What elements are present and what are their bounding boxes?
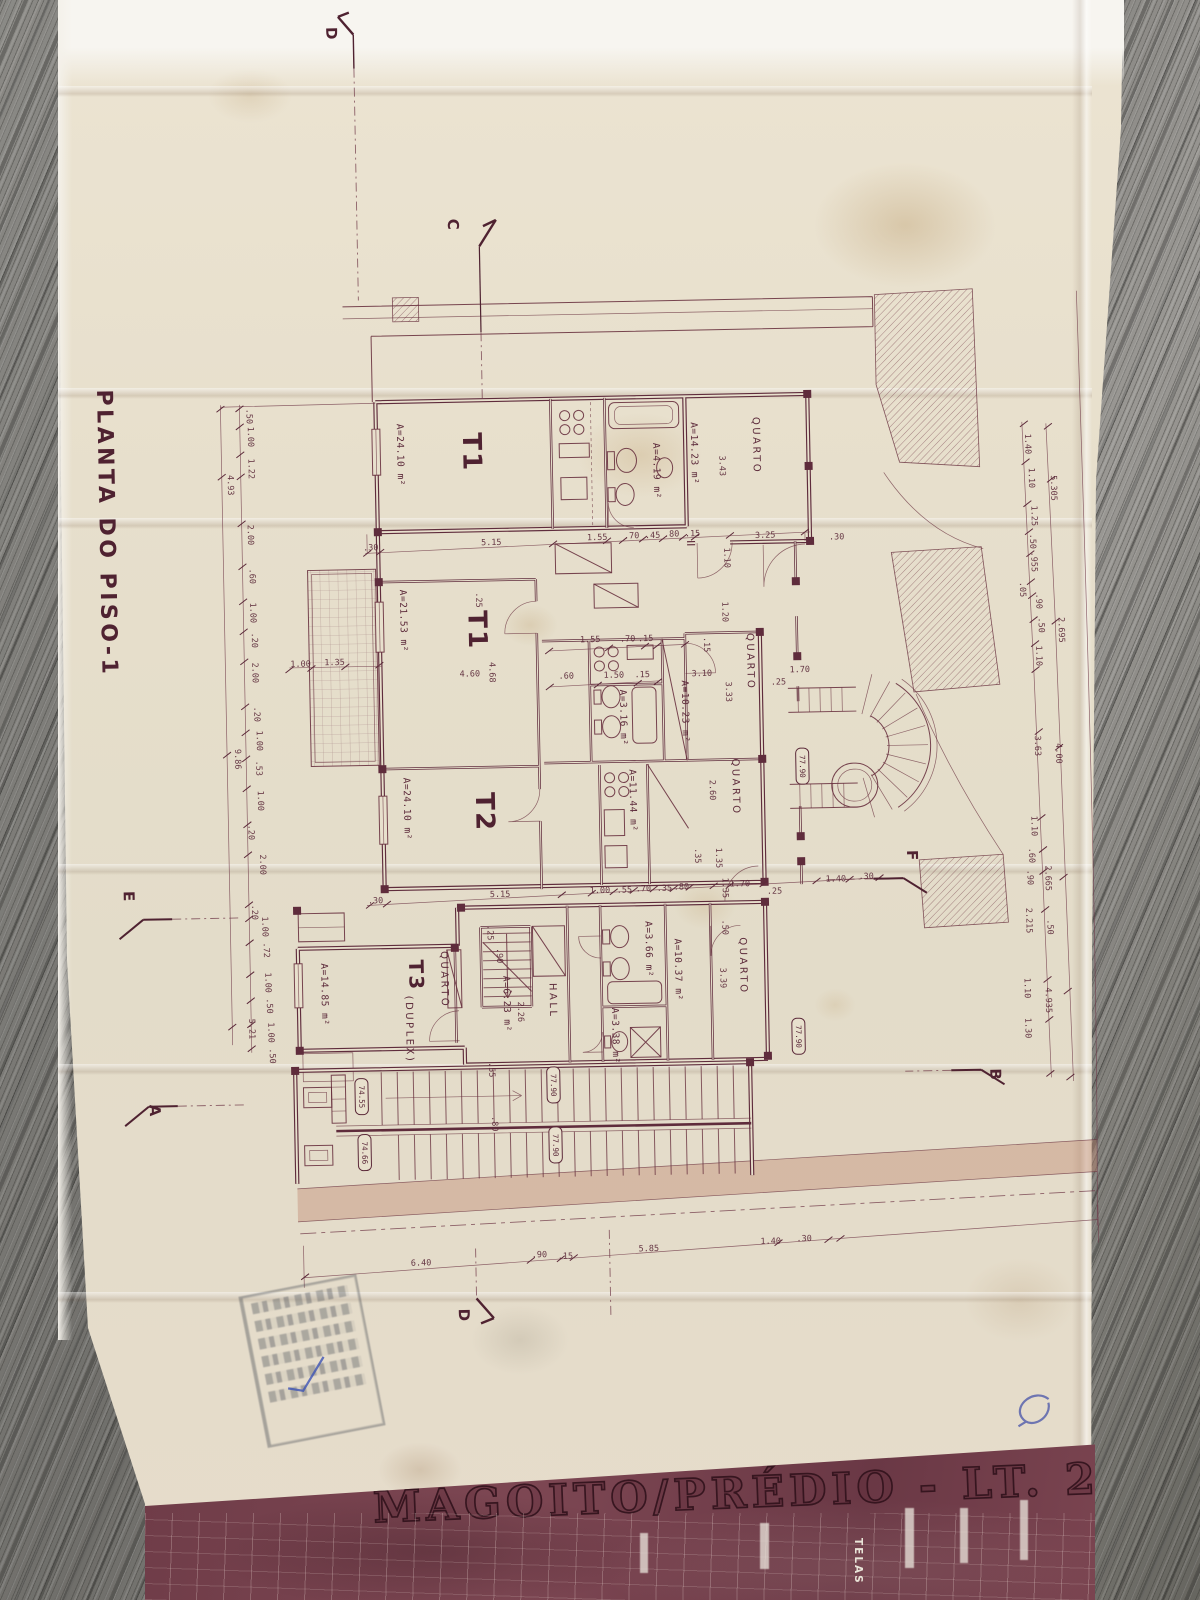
area-label: A=24.10 m² xyxy=(394,424,406,486)
dimension-label: .90 xyxy=(1033,593,1043,609)
dimension-label: .70 xyxy=(624,531,640,541)
area-label: A=14.23 m² xyxy=(688,422,700,484)
dimension-label: .35 xyxy=(657,884,673,894)
dimension-label: 1.00 xyxy=(245,427,255,448)
dimension-label: 2.00 xyxy=(257,854,267,875)
marker-label: D xyxy=(455,1309,473,1322)
level-marker-label: 77.90 xyxy=(549,1074,558,1097)
dimension-label: 1.40 xyxy=(1022,434,1032,455)
dimension-label: 1.00 xyxy=(290,660,311,670)
dimension-label: 9.86 xyxy=(232,749,242,770)
dimension-label: 2.665 xyxy=(1042,865,1052,891)
stairs-layer xyxy=(296,673,945,1182)
dimension-label: .25 xyxy=(771,677,787,687)
dimension-label: 1.10 xyxy=(1021,978,1031,999)
dimension-label: 1.55 xyxy=(580,635,601,645)
dimension-label: .72 xyxy=(261,942,271,958)
dimension-label: .60 xyxy=(559,671,575,681)
area-label: A=14.85 m² xyxy=(318,963,330,1025)
dimension-label: 1.35 xyxy=(324,658,345,668)
dimension-label: 2.00 xyxy=(245,525,255,546)
room-label: QUARTO xyxy=(737,937,749,994)
dimension-label: 1.35 xyxy=(713,848,723,869)
dimension-label: 3.63 xyxy=(1032,736,1042,757)
dimension-label: 1.00 xyxy=(265,1022,275,1043)
unit-label: T1 xyxy=(461,610,492,650)
area-label: A=21.53 m² xyxy=(397,590,409,652)
marker-label: D xyxy=(322,27,340,40)
area-label: A=11.44 m² xyxy=(626,769,638,831)
dimension-label: 1.55 xyxy=(587,533,608,543)
level-marker-label: 77.90 xyxy=(794,1025,803,1048)
room-label: QUARTO xyxy=(438,951,450,1008)
dimension-label: .25 xyxy=(767,887,783,897)
dimension-label: .25 xyxy=(473,592,483,608)
dimension-label: 2.695 xyxy=(1056,617,1066,643)
dimension-label: 4.93 xyxy=(225,475,235,496)
dimension-label: .60 xyxy=(246,569,256,585)
dimension-label: 3.25 xyxy=(755,531,776,541)
marker-label: E xyxy=(120,891,138,902)
dimension-label: 5.21 xyxy=(246,1019,256,1040)
dimension-label: .60 xyxy=(1026,848,1036,864)
room-label: (DUPLEX) xyxy=(403,996,415,1064)
floor-plan-drawing: 77.9077.9077.9077.9074.5574.66 PLANTA DO… xyxy=(0,0,1200,1600)
marker-label: C xyxy=(444,219,462,230)
dimension-label: 1.10 xyxy=(1033,645,1043,666)
dimension-label: .35 xyxy=(692,848,702,864)
dimension-label: .53 xyxy=(253,760,263,776)
dimension-label: 3.43 xyxy=(716,456,726,477)
title-block-text-smudge xyxy=(905,1508,914,1568)
dimension-label: 1.00 xyxy=(255,790,265,811)
dimension-label: 5.15 xyxy=(481,538,502,548)
dimension-label: 1.40 xyxy=(760,1237,781,1247)
dimension-label: 3.39 xyxy=(717,968,727,989)
dimension-label: .45 xyxy=(645,531,661,541)
title-block-text-smudge xyxy=(960,1508,968,1563)
dimension-label: .15 xyxy=(685,529,701,539)
dimension-label: .15 xyxy=(638,634,654,644)
area-label: A=3.16 m² xyxy=(617,689,629,745)
dimension-label: 1.25 xyxy=(1028,506,1038,527)
title-block-text-smudge xyxy=(1020,1500,1028,1560)
dimension-label: .20 xyxy=(249,905,259,921)
room-label: QUARTO xyxy=(729,758,741,815)
area-label: A=4.19 m² xyxy=(650,443,662,499)
dimension-label: .50 xyxy=(1027,534,1037,550)
level-marker-label: 77.90 xyxy=(798,755,807,778)
room-label: QUARTO xyxy=(744,633,756,690)
dimension-label: 1.30 xyxy=(1022,1018,1032,1039)
dimension-label: 1.00 xyxy=(262,972,272,993)
dimension-label: 1.40 xyxy=(825,874,846,884)
level-marker-label: 74.55 xyxy=(357,1086,366,1109)
dimension-label: 1.00 xyxy=(259,916,269,937)
dimension-label: .90 xyxy=(1024,870,1034,886)
unit-label: T2 xyxy=(469,792,500,832)
marker-label: F xyxy=(903,850,921,861)
terrace-tile-layer xyxy=(292,569,386,1082)
room-label: HALL xyxy=(547,983,559,1019)
level-marker-label: 74.66 xyxy=(360,1141,369,1164)
dimension-label: .30 xyxy=(796,1234,812,1244)
dimension-label: .20 xyxy=(249,633,259,649)
dimension-label: .80 xyxy=(489,1116,499,1132)
dimension-label: 6.40 xyxy=(411,1258,432,1268)
dimension-label: .30 xyxy=(363,543,379,553)
dimension-label: .955 xyxy=(1028,552,1038,573)
dimension-label: 4.60 xyxy=(459,669,480,679)
title-block-text-smudge xyxy=(640,1533,648,1573)
photo-of-floor-plan: 77.9077.9077.9077.9074.5574.66 PLANTA DO… xyxy=(0,0,1200,1600)
dimension-label: 1.10 xyxy=(721,547,731,568)
dimension-label: .90 xyxy=(494,948,504,964)
dimension-label: 2.215 xyxy=(1023,908,1033,934)
dimension-label: .15 xyxy=(701,637,711,653)
dimension-label: 4.68 xyxy=(486,662,496,683)
dimension-label: .30 xyxy=(368,896,384,906)
dimension-label: .15 xyxy=(635,670,651,680)
dimension-label: 1.22 xyxy=(245,459,255,480)
marker-label: A xyxy=(146,1104,164,1116)
area-label: A=3.38 m² xyxy=(609,1008,621,1064)
dimension-label: .55 xyxy=(617,885,633,895)
dimension-label: 4.935 xyxy=(1043,987,1053,1013)
dimension-label: .05 xyxy=(1017,582,1027,598)
walls-layer xyxy=(278,390,826,1184)
dimension-label: .70 xyxy=(620,634,636,644)
dimension-label: .55 xyxy=(486,1062,496,1078)
dimension-label: 1.50 xyxy=(604,671,625,681)
dimension-label: .50 xyxy=(264,998,274,1014)
dimension-label: .30 xyxy=(858,872,874,882)
dimension-label: 1.70 xyxy=(730,879,751,889)
dimension-label: 1.00 xyxy=(247,603,257,624)
title-label: PLANTA DO PISO-1 xyxy=(91,389,122,677)
dimension-label: 1.20 xyxy=(719,601,729,622)
dimension-label: .90 xyxy=(532,1250,548,1260)
dimension-label: 2.00 xyxy=(249,663,259,684)
area-label: A=10.23 m² xyxy=(679,680,691,742)
level-marker-label: 77.90 xyxy=(551,1134,560,1157)
dimension-label: .50 xyxy=(267,1048,277,1064)
dimension-label: 3.10 xyxy=(692,669,713,679)
dimension-label: 1.00 xyxy=(590,886,611,896)
dimension-label: 1.10 xyxy=(1028,816,1038,837)
dimension-label: .30 xyxy=(829,532,845,542)
dimension-label: .50 xyxy=(243,409,253,425)
dimension-label: 5.85 xyxy=(639,1244,660,1254)
dimension-label: .50 xyxy=(1036,617,1046,633)
marker-label: B xyxy=(986,1068,1004,1080)
dimension-label: .50 xyxy=(719,920,729,936)
area-label: A=3.66 m² xyxy=(642,921,654,977)
room-label: QUARTO xyxy=(750,417,762,474)
dimension-label: .20 xyxy=(245,825,255,841)
dimension-label: .70 xyxy=(636,884,652,894)
unit-label: T1 xyxy=(456,432,487,472)
area-label: A=10.37 m² xyxy=(672,938,684,1000)
dimension-label: 2.26 xyxy=(515,1001,525,1022)
dimension-label: 1.10 xyxy=(1026,468,1036,489)
dimension-label: 1.00 xyxy=(254,730,264,751)
dimension-label: 5.15 xyxy=(490,890,511,900)
dimension-label: 3.33 xyxy=(723,681,733,702)
unit-label: T3 xyxy=(404,959,429,991)
title-block-text-smudge xyxy=(760,1523,769,1569)
dimension-label: .20 xyxy=(251,706,261,722)
dimension-label: 5.305 xyxy=(1048,475,1058,501)
area-label: A=6.23 m² xyxy=(500,976,512,1032)
dimension-label: .80 xyxy=(674,882,690,892)
dimension-label: .15 xyxy=(558,1252,574,1262)
dimension-label: 4.00 xyxy=(1053,743,1063,764)
dimension-label: 1.35 xyxy=(720,878,730,899)
dimension-label: 2.60 xyxy=(707,780,717,801)
dimension-label: .80 xyxy=(664,529,680,539)
dimension-label: .50 xyxy=(1044,919,1054,935)
dimension-label: 1.70 xyxy=(789,665,810,675)
doors-layer xyxy=(419,499,814,1055)
dimension-label: .25 xyxy=(484,925,494,941)
title-block-vertical-label: TELAS xyxy=(852,1538,864,1585)
area-label: A=24.10 m² xyxy=(401,778,413,840)
